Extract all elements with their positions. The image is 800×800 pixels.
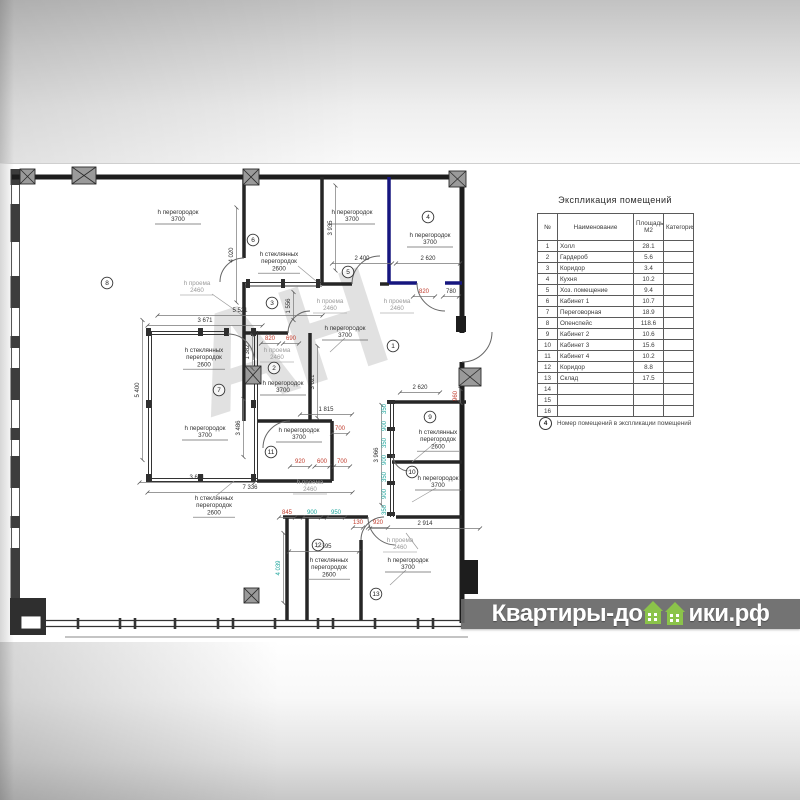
bottom-window-wall [46, 618, 468, 637]
table-cell: 10.6 [634, 329, 664, 340]
svg-text:2460: 2460 [323, 305, 337, 312]
table-row: 12Коридор8.8 [538, 362, 694, 373]
table-row: 11Кабинет 410.2 [538, 351, 694, 362]
table-row: 7Переговорная18.9 [538, 307, 694, 318]
plan-label: h перегородок3700 [415, 475, 461, 490]
svg-text:2600: 2600 [431, 443, 445, 450]
table-cell: 10.2 [634, 351, 664, 362]
svg-text:3700: 3700 [276, 387, 290, 394]
svg-text:10: 10 [408, 469, 416, 476]
footnote: 4 Номер помещений в экспликации помещени… [539, 417, 691, 430]
table-cell [664, 318, 694, 329]
table-cell: Коридор [558, 362, 634, 373]
svg-text:1 815: 1 815 [318, 407, 334, 413]
svg-text:3 935: 3 935 [328, 220, 334, 236]
dimension-label: 2 620 [394, 256, 462, 266]
svg-text:3700: 3700 [171, 216, 185, 223]
svg-text:2600: 2600 [322, 571, 336, 578]
svg-text:3 966: 3 966 [374, 447, 380, 463]
svg-text:350: 350 [382, 504, 388, 515]
explication-title: Экспликация помещений [537, 195, 693, 205]
svg-text:7 336: 7 336 [242, 485, 258, 491]
room-number: 2 [268, 362, 280, 374]
table-cell [664, 384, 694, 395]
plan-label: h проема2460 [260, 347, 294, 362]
table-cell [664, 395, 694, 406]
left-window-wall [11, 169, 21, 620]
svg-text:7: 7 [217, 387, 221, 394]
table-cell [664, 263, 694, 274]
room-number: 11 [265, 446, 277, 458]
dimension-label: 4 020 [229, 206, 239, 305]
plan-label: h проема2460 [313, 298, 347, 313]
table-header: Наименование [558, 214, 634, 241]
new-partitions [389, 177, 462, 283]
table-cell: Кабинет 4 [558, 351, 634, 362]
svg-text:перегородок: перегородок [261, 258, 297, 265]
svg-text:2460: 2460 [390, 305, 404, 312]
plan-label: h проема2460 [380, 298, 414, 313]
brand-suffix: ики.рф [688, 602, 769, 626]
plan-label: h перегородок3700 [182, 425, 228, 440]
svg-text:4: 4 [426, 214, 430, 221]
svg-text:h перегородок: h перегородок [158, 209, 199, 216]
plan-label: h проема2460 [383, 537, 417, 552]
svg-text:130: 130 [353, 520, 364, 526]
svg-text:2 620: 2 620 [420, 256, 436, 262]
table-cell: 11 [538, 351, 558, 362]
table-cell: Кабинет 1 [558, 296, 634, 307]
table-cell: Гардероб [558, 252, 634, 263]
plan-label: h проема2460 [293, 479, 327, 494]
svg-text:3700: 3700 [423, 239, 437, 246]
svg-text:h проема: h проема [384, 298, 411, 305]
svg-text:перегородок: перегородок [186, 354, 222, 361]
svg-text:820: 820 [419, 289, 430, 295]
svg-text:h стеклянных: h стеклянных [419, 429, 458, 436]
svg-text:4 020: 4 020 [229, 247, 235, 263]
table-cell: Кабинет 3 [558, 340, 634, 351]
table-cell [664, 241, 694, 252]
svg-text:2600: 2600 [197, 361, 211, 368]
svg-text:h проема: h проема [264, 347, 291, 354]
table-cell: 15 [538, 395, 558, 406]
svg-text:h перегородок: h перегородок [418, 475, 459, 482]
table-row: 8Опенспейс118.6 [538, 318, 694, 329]
table-cell: 10.2 [634, 274, 664, 285]
plan-label: h стеклянныхперегородок2600 [308, 557, 350, 579]
table-cell: 18.9 [634, 307, 664, 318]
table-cell: Склад [558, 373, 634, 384]
svg-text:1 382: 1 382 [245, 344, 251, 360]
table-cell: 12 [538, 362, 558, 373]
svg-text:1 556: 1 556 [286, 298, 292, 314]
table-cell: 16 [538, 406, 558, 417]
plan-label: h перегородок3700 [407, 232, 453, 247]
svg-text:12: 12 [314, 542, 322, 549]
plan-label: h стеклянныхперегородок2600 [417, 429, 459, 451]
svg-text:700: 700 [335, 426, 346, 432]
table-row: 2Гардероб5.6 [538, 252, 694, 263]
svg-text:h стеклянных: h стеклянных [260, 251, 299, 258]
table-cell: Переговорная [558, 307, 634, 318]
svg-text:2 620: 2 620 [412, 385, 428, 391]
plan-label: h стеклянныхперегородок2600 [183, 347, 225, 369]
svg-text:900: 900 [382, 454, 388, 465]
table-cell: Опенспейс [558, 318, 634, 329]
dimension-label: 350 [382, 437, 388, 448]
plan-label: h перегородок3700 [329, 209, 375, 224]
table-cell [634, 406, 664, 417]
svg-text:350: 350 [382, 471, 388, 482]
dimension-label: 5 521 [156, 308, 325, 318]
svg-text:перегородок: перегородок [420, 436, 456, 443]
table-cell: Коридор [558, 263, 634, 274]
explication-table: №НаименованиеПлощадь М2Категория 1Холл28… [537, 213, 694, 417]
svg-text:2460: 2460 [270, 354, 284, 361]
table-row: 10Кабинет 315.6 [538, 340, 694, 351]
dimension-label: 3 671 [146, 318, 265, 328]
svg-text:350: 350 [382, 437, 388, 448]
svg-text:h перегородок: h перегородок [279, 427, 320, 434]
table-header: Категория [664, 214, 694, 241]
svg-text:3 486: 3 486 [236, 420, 242, 436]
table-cell: 5 [538, 285, 558, 296]
table-cell [558, 406, 634, 417]
table-cell: 4 [538, 274, 558, 285]
table-row: 1Холл28.1 [538, 241, 694, 252]
dimension-label: 3 935 [328, 184, 338, 273]
svg-text:3700: 3700 [345, 216, 359, 223]
svg-text:5 400: 5 400 [135, 382, 141, 398]
table-cell: 8.8 [634, 362, 664, 373]
svg-text:8: 8 [105, 280, 109, 287]
plan-label: h перегородок3700 [322, 325, 368, 340]
table-cell: 7 [538, 307, 558, 318]
room-number: 9 [424, 411, 436, 423]
dimension-label: 920 [288, 459, 312, 469]
svg-text:820: 820 [265, 336, 276, 342]
dimension-label: 820 [259, 336, 281, 346]
svg-text:845: 845 [282, 510, 293, 516]
table-cell [664, 307, 694, 318]
table-row: 6Кабинет 110.7 [538, 296, 694, 307]
table-cell [664, 340, 694, 351]
table-cell: 13 [538, 373, 558, 384]
room-number: 12 [312, 539, 324, 551]
svg-text:h проема: h проема [184, 280, 211, 287]
plan-label: h проема2460 [180, 280, 214, 295]
svg-text:h перегородок: h перегородок [263, 380, 304, 387]
dimension-label: 900 [382, 488, 388, 499]
svg-text:9: 9 [428, 414, 432, 421]
svg-text:6: 6 [251, 237, 255, 244]
table-cell [664, 351, 694, 362]
room-number: 8 [101, 277, 113, 289]
dimension-label: 350 [382, 504, 388, 515]
svg-text:690: 690 [286, 336, 297, 342]
table-cell: 118.6 [634, 318, 664, 329]
dimension-label: 600 [313, 459, 332, 469]
svg-text:3 671: 3 671 [189, 475, 205, 481]
svg-text:4 039: 4 039 [276, 560, 282, 576]
table-cell: 9.4 [634, 285, 664, 296]
svg-text:11: 11 [268, 449, 275, 456]
svg-text:350: 350 [382, 403, 388, 414]
svg-text:перегородок: перегородок [196, 502, 232, 509]
svg-text:3700: 3700 [338, 332, 352, 339]
dimension-label: 700 [332, 459, 352, 469]
svg-text:h перегородок: h перегородок [332, 209, 373, 216]
table-cell [664, 362, 694, 373]
svg-text:3700: 3700 [292, 434, 306, 441]
table-cell: 28.1 [634, 241, 664, 252]
table-row: 5Хоз. помещение9.4 [538, 285, 694, 296]
svg-text:h перегородок: h перегородок [410, 232, 451, 239]
table-cell [664, 274, 694, 285]
plan-label: h перегородок3700 [260, 380, 306, 395]
svg-text:960: 960 [453, 390, 459, 401]
dimension-label: 1 815 [298, 407, 354, 417]
svg-text:1: 1 [391, 343, 395, 350]
svg-text:перегородок: перегородок [311, 564, 347, 571]
svg-text:3700: 3700 [198, 432, 212, 439]
dimension-label: 2 400 [330, 256, 394, 266]
dimension-label: 900 [382, 454, 388, 465]
dimension-label: 7 336 [146, 485, 355, 495]
table-cell: Кухня [558, 274, 634, 285]
svg-text:780: 780 [446, 289, 457, 295]
svg-text:3700: 3700 [431, 482, 445, 489]
table-cell: 10 [538, 340, 558, 351]
plan-label: h стеклянныхперегородок2600 [258, 251, 300, 273]
svg-text:900: 900 [382, 420, 388, 431]
table-cell: 1 [538, 241, 558, 252]
table-cell [664, 373, 694, 384]
brand-watermark: Квартиры-до ики.рф [461, 599, 800, 629]
svg-text:h проема: h проема [297, 479, 324, 486]
table-cell: 17.5 [634, 373, 664, 384]
table-cell: 3 [538, 263, 558, 274]
dimension-label: 3 671 [138, 475, 257, 485]
table-cell [664, 406, 694, 417]
table-cell: 14 [538, 384, 558, 395]
table-cell [664, 296, 694, 307]
dimension-label: 2 620 [398, 385, 442, 395]
svg-text:3: 3 [270, 300, 274, 307]
table-header: № [538, 214, 558, 241]
plan-label: h стеклянныхперегородок2600 [193, 495, 235, 517]
table-cell: 9 [538, 329, 558, 340]
svg-text:900: 900 [307, 510, 318, 516]
svg-text:h стеклянных: h стеклянных [195, 495, 234, 502]
dimension-label: 780 [441, 289, 461, 299]
room-number: 10 [406, 466, 418, 478]
svg-text:2600: 2600 [272, 265, 286, 272]
dimension-label: 4 039 [276, 531, 286, 605]
svg-text:h стеклянных: h стеклянных [185, 347, 224, 354]
svg-text:h перегородок: h перегородок [325, 325, 366, 332]
table-cell: 15.6 [634, 340, 664, 351]
plan-label: h перегородок3700 [155, 209, 201, 224]
table-cell: 8 [538, 318, 558, 329]
svg-text:h перегородок: h перегородок [388, 557, 429, 564]
dimension-label: 350 [382, 471, 388, 482]
table-cell [664, 285, 694, 296]
table-row: 16 [538, 406, 694, 417]
table-cell [664, 252, 694, 263]
svg-text:h перегородок: h перегородок [185, 425, 226, 432]
svg-text:2: 2 [272, 365, 276, 372]
svg-text:2600: 2600 [207, 509, 221, 516]
svg-text:2460: 2460 [190, 287, 204, 294]
table-cell: 5.6 [634, 252, 664, 263]
footnote-text: Номер помещений в экспликации помещений [557, 420, 691, 427]
dimension-label: 5 400 [135, 318, 145, 462]
table-cell: Кабинет 2 [558, 329, 634, 340]
dimension-label: 820 [411, 289, 437, 299]
table-row: 13Склад17.5 [538, 373, 694, 384]
table-cell [558, 395, 634, 406]
room-number: 5 [342, 266, 354, 278]
dimension-label: 130 [351, 520, 365, 530]
dimension-label: 350 [382, 403, 388, 414]
table-row: 14 [538, 384, 694, 395]
room-number: 7 [213, 384, 225, 396]
svg-text:h стеклянных: h стеклянных [310, 557, 349, 564]
table-row: 4Кухня10.2 [538, 274, 694, 285]
svg-text:950: 950 [331, 510, 342, 516]
svg-text:3700: 3700 [401, 564, 415, 571]
table-cell: Хоз. помещение [558, 285, 634, 296]
dimension-label: 900 [382, 420, 388, 431]
table-header-row: №НаименованиеПлощадь М2Категория [538, 214, 694, 241]
table-cell: 10.7 [634, 296, 664, 307]
svg-text:h проема: h проема [317, 298, 344, 305]
plan-label: h перегородок3700 [276, 427, 322, 442]
svg-text:h проема: h проема [387, 537, 414, 544]
table-cell [558, 384, 634, 395]
table-cell: 3.4 [634, 263, 664, 274]
table-row: 15 [538, 395, 694, 406]
table-cell [664, 329, 694, 340]
table-row: 9Кабинет 210.6 [538, 329, 694, 340]
svg-text:600: 600 [317, 459, 328, 465]
svg-text:920: 920 [295, 459, 306, 465]
dimension-label: 690 [281, 336, 301, 346]
svg-text:3 671: 3 671 [197, 318, 213, 324]
room-number: 4 [422, 211, 434, 223]
svg-text:900: 900 [382, 488, 388, 499]
table-cell: Холл [558, 241, 634, 252]
table-row: 3Коридор3.4 [538, 263, 694, 274]
svg-text:2 914: 2 914 [417, 521, 433, 527]
table-cell: 6 [538, 296, 558, 307]
room-number: 3 [266, 297, 278, 309]
room-number: 1 [387, 340, 399, 352]
dimension-label: 2 914 [368, 521, 482, 531]
table-header: Площадь М2 [634, 214, 664, 241]
svg-text:3 621: 3 621 [310, 374, 316, 390]
svg-text:13: 13 [372, 591, 380, 598]
table-cell [634, 395, 664, 406]
table-cell: 2 [538, 252, 558, 263]
table-cell [634, 384, 664, 395]
svg-text:920: 920 [373, 520, 384, 526]
plan-label: h перегородок3700 [385, 557, 431, 572]
room-number: 13 [370, 588, 382, 600]
room-number-symbol: 4 [539, 417, 552, 430]
svg-text:2 400: 2 400 [354, 256, 370, 262]
svg-text:2460: 2460 [393, 544, 407, 551]
green-houses-icon [643, 600, 687, 627]
svg-text:700: 700 [337, 459, 348, 465]
svg-text:5 521: 5 521 [232, 308, 248, 314]
svg-text:5: 5 [346, 269, 350, 276]
room-number: 6 [247, 234, 259, 246]
brand-prefix: Квартиры-до [492, 602, 643, 626]
